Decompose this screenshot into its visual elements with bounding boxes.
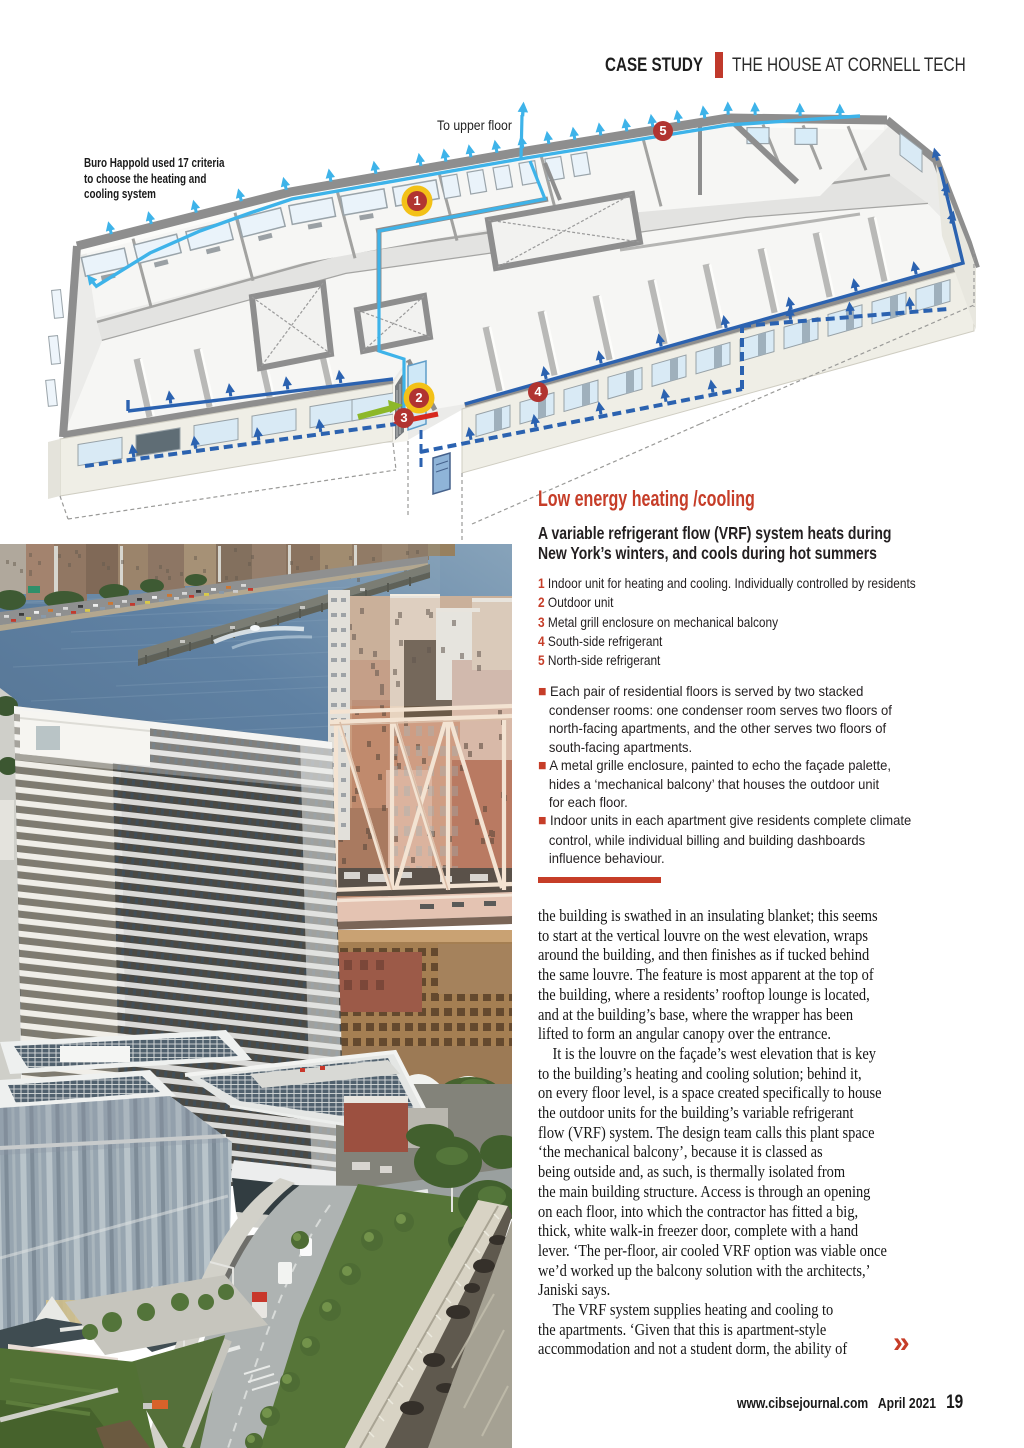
svg-text:3: 3 [400,410,407,425]
svg-text:4: 4 [534,384,542,399]
svg-text:2: 2 [415,390,422,405]
svg-text:1: 1 [413,193,420,208]
svg-text:5: 5 [659,123,666,138]
